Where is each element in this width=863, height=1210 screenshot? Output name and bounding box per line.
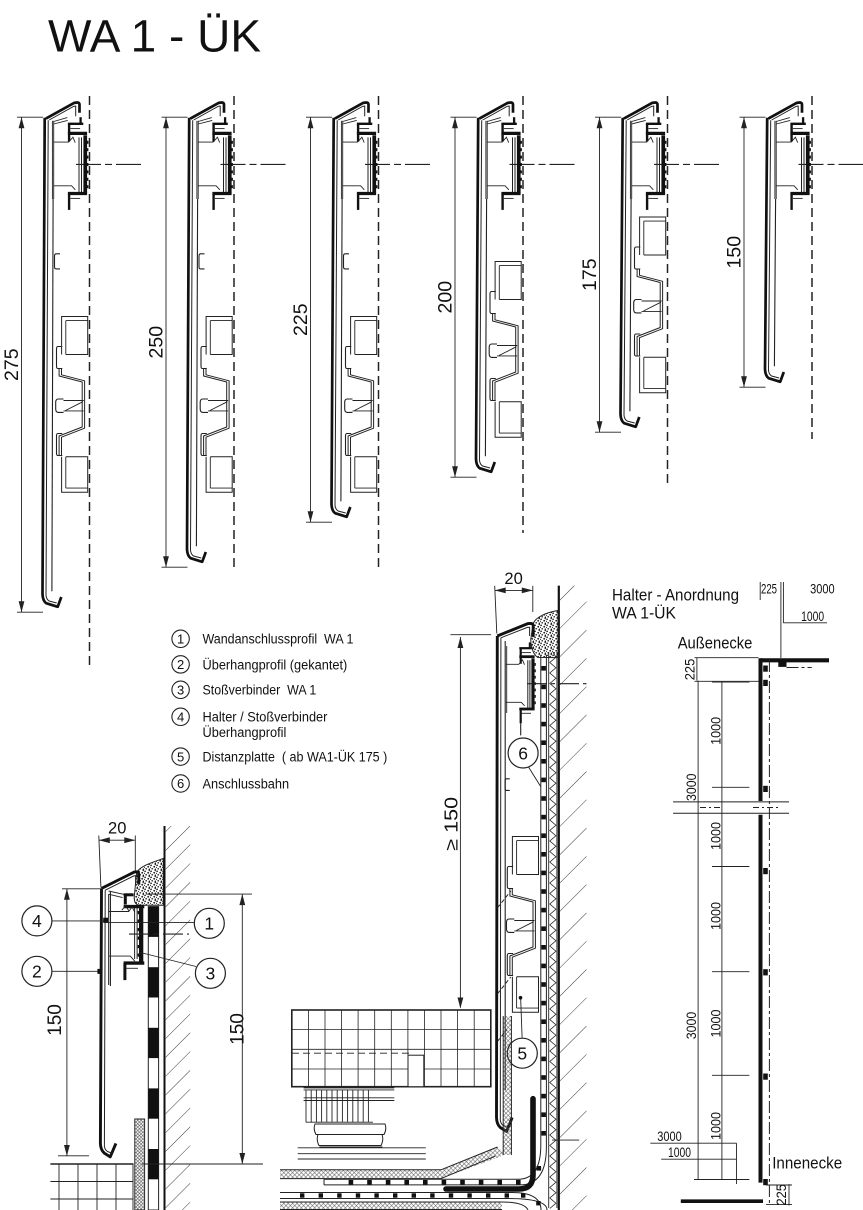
svg-text:225: 225 [773, 1184, 789, 1206]
svg-text:4: 4 [32, 911, 42, 931]
svg-text:20: 20 [504, 570, 522, 588]
svg-text:1: 1 [204, 914, 214, 934]
svg-text:1000: 1000 [708, 822, 724, 850]
svg-text:1000: 1000 [708, 902, 724, 930]
svg-text:150: 150 [45, 1004, 66, 1036]
svg-text:5: 5 [177, 749, 184, 764]
svg-text:1000: 1000 [668, 1144, 691, 1160]
svg-text:6: 6 [518, 743, 528, 763]
svg-text:Wandanschlussprofil WA 1: Wandanschlussprofil WA 1 [203, 632, 354, 648]
svg-text:225: 225 [682, 659, 698, 681]
svg-text:WA 1 - ÜK: WA 1 - ÜK [48, 11, 261, 62]
svg-text:Halter - Anordnung: Halter - Anordnung [612, 586, 739, 605]
svg-text:250: 250 [145, 326, 167, 359]
svg-text:≥ 150: ≥ 150 [442, 797, 462, 851]
svg-text:150: 150 [723, 236, 745, 269]
svg-text:3000: 3000 [683, 1012, 699, 1040]
svg-text:1000: 1000 [708, 1009, 724, 1037]
svg-text:Überhangprofil (gekantet): Überhangprofil (gekantet) [203, 655, 348, 673]
svg-text:200: 200 [434, 281, 456, 314]
svg-text:20: 20 [108, 820, 126, 838]
svg-text:1000: 1000 [801, 608, 824, 624]
svg-text:WA 1-ÜK: WA 1-ÜK [612, 604, 677, 623]
svg-text:3: 3 [177, 683, 184, 698]
svg-text:175: 175 [579, 258, 601, 291]
svg-text:275: 275 [1, 348, 23, 381]
svg-text:3000: 3000 [683, 773, 699, 801]
svg-text:1000: 1000 [708, 1112, 724, 1140]
svg-text:Stoßverbinder WA 1: Stoßverbinder WA 1 [203, 683, 317, 699]
svg-text:5: 5 [517, 1044, 527, 1064]
svg-text:Außenecke: Außenecke [678, 634, 753, 653]
svg-text:150: 150 [227, 1013, 248, 1045]
svg-text:3000: 3000 [810, 581, 835, 597]
svg-text:Überhangprofil: Überhangprofil [203, 723, 287, 741]
svg-text:3000: 3000 [657, 1128, 682, 1144]
svg-text:Anschlussbahn: Anschlussbahn [203, 776, 290, 792]
svg-text:Innenecke: Innenecke [772, 1154, 842, 1173]
svg-text:3: 3 [206, 964, 216, 984]
svg-text:4: 4 [177, 710, 184, 725]
svg-text:1000: 1000 [708, 717, 724, 745]
svg-text:2: 2 [177, 657, 184, 672]
svg-text:225: 225 [290, 303, 312, 336]
svg-text:1: 1 [177, 632, 184, 647]
svg-text:6: 6 [177, 776, 184, 791]
svg-text:2: 2 [32, 962, 42, 982]
svg-text:Halter / Stoßverbinder: Halter / Stoßverbinder [203, 710, 328, 726]
svg-text:225: 225 [761, 581, 777, 597]
svg-text:Distanzplatte ( ab WA1-ÜK 175: Distanzplatte ( ab WA1-ÜK 175 ) [203, 748, 388, 766]
